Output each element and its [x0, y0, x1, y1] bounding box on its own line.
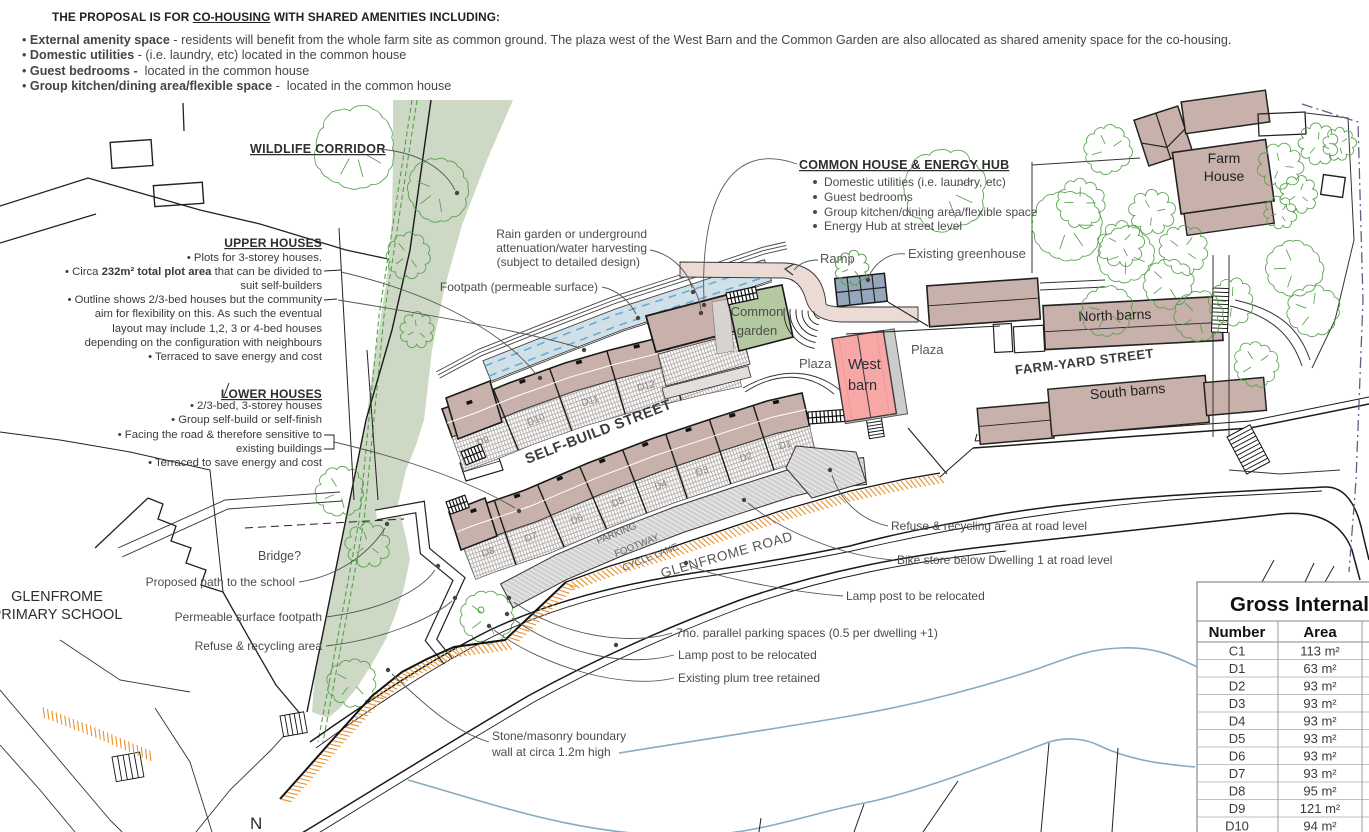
svg-text:C1: C1 [1229, 644, 1246, 659]
svg-text:95 m²: 95 m² [1303, 784, 1337, 799]
svg-text:63 m²: 63 m² [1303, 661, 1337, 676]
svg-text:UPPER HOUSES: UPPER HOUSES [224, 236, 322, 250]
svg-text:depending on the configuration: depending on the configuration with neig… [85, 337, 323, 349]
svg-text:93 m²: 93 m² [1303, 766, 1337, 781]
svg-text:LOWER HOUSES: LOWER HOUSES [221, 387, 322, 401]
svg-text:Proposed path to the school: Proposed path to the school [146, 575, 295, 589]
svg-text:• Group self-build or self-fin: • Group self-build or self-finish [171, 414, 322, 426]
svg-text:93 m²: 93 m² [1303, 714, 1337, 729]
svg-text:Area: Area [1303, 624, 1337, 641]
svg-text:Bike store below Dwelling 1 at: Bike store below Dwelling 1 at road leve… [897, 553, 1112, 567]
svg-text:Lamp post to be relocated: Lamp post to be relocated [678, 648, 817, 662]
svg-text:D5: D5 [1229, 731, 1246, 746]
svg-text:D9: D9 [1229, 801, 1246, 816]
svg-text:layout may include 1,2, 3 or 4: layout may include 1,2, 3 or 4-bed house… [112, 323, 322, 335]
svg-text:D2: D2 [1229, 679, 1246, 694]
svg-text:Number: Number [1209, 624, 1266, 641]
svg-text:Footpath (permeable surface): Footpath (permeable surface) [440, 280, 598, 294]
svg-text:93 m²: 93 m² [1303, 749, 1337, 764]
svg-text:aim for flexibility on this. A: aim for flexibility on this. As such the… [95, 308, 322, 320]
svg-text:94 m²: 94 m² [1303, 819, 1337, 832]
svg-text:Refuse & recycling area: Refuse & recycling area [195, 639, 323, 653]
svg-text:Existing plum tree retained: Existing plum tree retained [678, 671, 820, 685]
svg-text:93 m²: 93 m² [1303, 731, 1337, 746]
svg-text:• Outline shows 2/3-bed houses: • Outline shows 2/3-bed houses but the c… [67, 294, 322, 306]
svg-text:• Terraced to save energy and: • Terraced to save energy and cost [148, 457, 323, 469]
svg-text:Stone/masonry boundarywall at: Stone/masonry boundarywall at circa 1.2m… [491, 729, 626, 759]
svg-text:suit self-builders: suit self-builders [240, 280, 322, 292]
svg-text:Group kitchen/dining area/flex: Group kitchen/dining area/flexible space [824, 205, 1038, 219]
svg-text:Lamp post to be relocated: Lamp post to be relocated [846, 589, 985, 603]
svg-text:Plaza: Plaza [911, 342, 944, 357]
svg-text:7no. parallel parking spaces (: 7no. parallel parking spaces (0.5 per dw… [676, 626, 938, 640]
svg-text:• Facing the road & therefore: • Facing the road & therefore sensitive … [118, 429, 322, 441]
svg-text:D1: D1 [1229, 661, 1246, 676]
svg-text:D10: D10 [1225, 819, 1249, 832]
svg-text:• Terraced to save energy and: • Terraced to save energy and cost [148, 351, 323, 363]
svg-text:WILDLIFE CORRIDOR: WILDLIFE CORRIDOR [250, 142, 386, 156]
svg-text:121 m²: 121 m² [1300, 801, 1341, 816]
svg-text:N: N [250, 814, 262, 832]
svg-text:93 m²: 93 m² [1303, 679, 1337, 694]
svg-text:• Circa 232m² total plot area: • Circa 232m² total plot area that can b… [65, 266, 322, 278]
svg-text:113 m²: 113 m² [1300, 644, 1340, 659]
svg-text:GLENFROMEPRIMARY SCHOOL: GLENFROMEPRIMARY SCHOOL [0, 589, 122, 623]
svg-text:Gross Internal Area: Gross Internal Area [1230, 593, 1369, 616]
svg-text:Domestic utilities (i.e. laund: Domestic utilities (i.e. laundry, etc) [824, 175, 1006, 189]
svg-text:COMMON HOUSE & ENERGY HUB: COMMON HOUSE & ENERGY HUB [799, 158, 1009, 172]
svg-text:Permeable surface footpath: Permeable surface footpath [175, 610, 322, 624]
svg-text:D4: D4 [1229, 714, 1246, 729]
svg-text:93 m²: 93 m² [1303, 696, 1337, 711]
svg-text:• Plots for 3-storey houses.: • Plots for 3-storey houses. [187, 252, 322, 264]
svg-text:North barns: North barns [1078, 306, 1152, 325]
svg-text:Guest bedrooms: Guest bedrooms [824, 190, 913, 204]
svg-text:Bridge?: Bridge? [258, 549, 301, 563]
svg-text:D3: D3 [1229, 696, 1246, 711]
svg-text:existing buildings: existing buildings [236, 443, 322, 455]
svg-text:Energy Hub at street level: Energy Hub at street level [824, 219, 962, 233]
svg-text:Plaza: Plaza [799, 356, 832, 371]
svg-text:Refuse & recycling area at roa: Refuse & recycling area at road level [891, 519, 1087, 533]
svg-text:• 2/3-bed, 3-storey houses: • 2/3-bed, 3-storey houses [190, 400, 322, 412]
svg-text:D6: D6 [1229, 749, 1246, 764]
svg-text:Rain garden or undergroundatte: Rain garden or undergroundattenuation/wa… [496, 227, 647, 269]
svg-text:D7: D7 [1229, 766, 1246, 781]
svg-text:D8: D8 [1229, 784, 1246, 799]
svg-text:Existing greenhouse: Existing greenhouse [908, 246, 1026, 261]
